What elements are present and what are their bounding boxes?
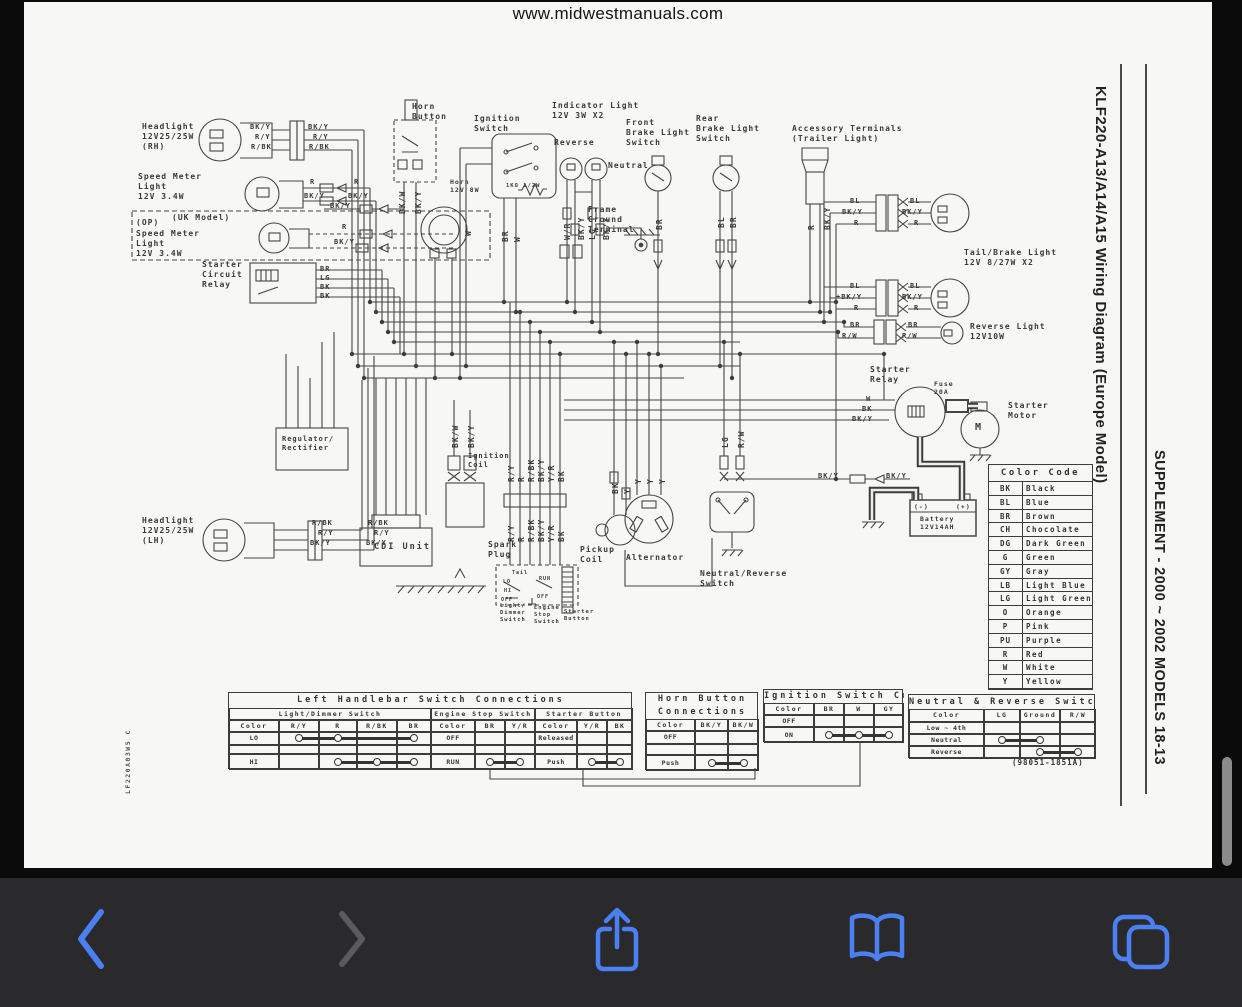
color-code-row: BLBlue [989, 496, 1092, 510]
color-code-row: BKBlack [989, 482, 1092, 496]
connection-terminal [885, 731, 893, 739]
color-name: Gray [1023, 565, 1092, 579]
table-cell [505, 732, 535, 745]
connection-table: Neutral & Reverse Switch ConnectionsColo… [908, 694, 1095, 758]
table-cell [695, 744, 728, 755]
connection-terminal [1036, 736, 1044, 744]
table-cell [607, 732, 633, 745]
color-name: White [1023, 661, 1092, 675]
color-abbr: BL [989, 496, 1023, 510]
part-number: (98051-1851A) [1012, 758, 1084, 767]
connection-bar [712, 762, 744, 765]
table-cell: Push [646, 755, 695, 771]
color-code-title: Color Code [989, 465, 1092, 482]
table-cell: R/BK [357, 720, 397, 732]
color-code-row: CHChocolate [989, 523, 1092, 537]
table-cell: R [319, 720, 357, 732]
table-cell [475, 732, 505, 745]
color-code-row: WWhite [989, 661, 1092, 675]
color-code-row: LGLight Green [989, 592, 1092, 606]
bookmarks-button[interactable] [837, 896, 917, 986]
table-cell: Low ~ 4th [909, 722, 984, 734]
table-cell: Color [764, 703, 814, 715]
table-cell: BK/Y [695, 719, 728, 731]
color-abbr: P [989, 620, 1023, 634]
connection-terminal [516, 758, 524, 766]
table-title: Left Handlebar Switch Connections [229, 693, 633, 708]
table-cell [319, 745, 357, 754]
table-cell [357, 745, 397, 754]
connection-terminal [334, 758, 342, 766]
table-cell: Engine Stop Switch [431, 708, 535, 720]
table-cell: Y/R [505, 720, 535, 732]
connection-terminal [708, 759, 716, 767]
color-name: Chocolate [1023, 523, 1092, 537]
color-name: Red [1023, 648, 1092, 662]
forward-chevron-icon [338, 910, 368, 973]
table-cell [1060, 722, 1096, 734]
table-cell: R/Y [279, 720, 319, 732]
color-abbr: LB [989, 579, 1023, 593]
table-cell: LG [984, 709, 1020, 722]
table-cell: GY [874, 703, 904, 715]
color-name: Light Blue [1023, 579, 1092, 593]
table-cell [728, 731, 759, 744]
table-cell [577, 732, 607, 745]
table-title: Neutral & Reverse Switch Connections [909, 695, 1096, 709]
color-code-row: OOrange [989, 606, 1092, 620]
table-cell: LO [229, 732, 279, 745]
color-code-row: RRed [989, 648, 1092, 662]
table-cell: Push [535, 754, 577, 770]
table-cell [431, 745, 475, 754]
table-cell: Starter Button [535, 708, 633, 720]
side-divider-line-1 [1120, 64, 1122, 806]
connection-terminal [588, 758, 596, 766]
document-page[interactable]: www.midwestmanuals.com [24, 2, 1212, 868]
connection-table: Left Handlebar Switch ConnectionsLight/D… [228, 692, 632, 769]
connection-terminal [616, 758, 624, 766]
table-cell: RUN [431, 754, 475, 770]
color-code-row: LBLight Blue [989, 579, 1092, 593]
color-name: Purple [1023, 634, 1092, 648]
table-cell: OFF [431, 732, 475, 745]
table-cell: HI [229, 754, 279, 770]
table-cell: W [844, 703, 874, 715]
connection-terminal [825, 731, 833, 739]
table-cell: Color [229, 720, 279, 732]
color-code-row: GGreen [989, 551, 1092, 565]
color-name: Orange [1023, 606, 1092, 620]
table-cell [646, 744, 695, 755]
forward-button[interactable] [313, 896, 393, 986]
table-cell [475, 745, 505, 754]
table-cell: Released [535, 732, 577, 745]
color-name: Blue [1023, 496, 1092, 510]
color-abbr: LG [989, 592, 1023, 606]
table-cell [279, 754, 319, 770]
connection-terminal [998, 736, 1006, 744]
table-cell: Y/R [577, 720, 607, 732]
table-cell [279, 745, 319, 754]
table-cell [814, 715, 844, 727]
connection-terminal [334, 734, 342, 742]
junction-dots [350, 300, 886, 481]
connection-terminal [1036, 748, 1044, 756]
table-cell: Neutral [909, 734, 984, 746]
color-abbr: GY [989, 565, 1023, 579]
side-divider-line-2 [1145, 64, 1147, 794]
color-abbr: BR [989, 510, 1023, 524]
color-code-row: DGDark Green [989, 537, 1092, 551]
connection-terminal [486, 758, 494, 766]
color-name: Dark Green [1023, 537, 1092, 551]
table-cell [535, 745, 577, 754]
color-abbr: PU [989, 634, 1023, 648]
color-name: Black [1023, 482, 1092, 496]
table-cell: Color [535, 720, 577, 732]
table-cell: BR [814, 703, 844, 715]
wiring-lines [132, 100, 999, 786]
color-name: Yellow [1023, 675, 1092, 689]
connection-bar [1002, 739, 1040, 742]
table-cell: Light/Dimmer Switch [229, 708, 431, 720]
book-icon [844, 911, 910, 972]
color-abbr: CH [989, 523, 1023, 537]
table-cell [229, 745, 279, 754]
tabs-icon [1107, 907, 1173, 976]
connection-terminal [1074, 748, 1082, 756]
tabs-button[interactable] [1100, 896, 1180, 986]
side-subtitle: SUPPLEMENT - 2000 ~ 2002 MODELS 18-13 [1151, 450, 1167, 810]
color-name: Pink [1023, 620, 1092, 634]
table-cell [874, 715, 904, 727]
table-cell: OFF [646, 731, 695, 744]
connection-terminal [410, 758, 418, 766]
table-cell: Ground [1020, 709, 1060, 722]
color-name: Light Green [1023, 592, 1092, 606]
back-chevron-icon [75, 908, 105, 975]
connection-terminal [855, 731, 863, 739]
table-cell [844, 715, 874, 727]
table-cell: OFF [764, 715, 814, 727]
table-cell [607, 745, 633, 754]
browser-toolbar [0, 878, 1242, 1007]
color-code-row: GYGray [989, 565, 1092, 579]
scrollbar-thumb[interactable] [1222, 757, 1232, 866]
table-cell [695, 731, 728, 744]
color-name: Brown [1023, 510, 1092, 524]
table-cell: Color [909, 709, 984, 722]
color-abbr: R [989, 648, 1023, 662]
color-code-table: Color Code BKBlackBLBlueBRBrownCHChocola… [988, 464, 1093, 690]
connection-terminal [410, 734, 418, 742]
color-abbr: BK [989, 482, 1023, 496]
back-button[interactable] [50, 896, 130, 986]
table-cell [397, 745, 431, 754]
color-code-row: PUPurple [989, 634, 1092, 648]
color-abbr: G [989, 551, 1023, 565]
table-cell [505, 745, 535, 754]
color-abbr: Y [989, 675, 1023, 689]
table-cell: Color [646, 719, 695, 731]
connection-table: Ignition Switch ConnectionsColorBRWGYOFF… [763, 689, 903, 742]
share-button[interactable] [577, 896, 657, 986]
table-cell [728, 744, 759, 755]
color-abbr: W [989, 661, 1023, 675]
connection-bar [299, 737, 414, 740]
connection-bar [1040, 751, 1078, 754]
doc-code: LF220A03W5 C [124, 729, 132, 794]
table-cell [1060, 734, 1096, 746]
table-title: Ignition Switch Connections [764, 690, 904, 703]
table-cell [984, 722, 1020, 734]
color-abbr: DG [989, 537, 1023, 551]
connection-terminal [373, 758, 381, 766]
table-cell: BK/W [728, 719, 759, 731]
table-cell: ON [764, 727, 814, 743]
table-cell: Reverse [909, 746, 984, 759]
table-cell: R/W [1060, 709, 1096, 722]
connection-table: Horn ButtonConnectionsColorBK/YBK/WOFFPu… [645, 692, 758, 770]
connection-terminal [295, 734, 303, 742]
table-cell [1020, 722, 1060, 734]
table-title: Connections [646, 706, 759, 719]
table-cell: BR [475, 720, 505, 732]
color-code-row: YYellow [989, 675, 1092, 689]
color-code-row: BRBrown [989, 510, 1092, 524]
color-code-row: PPink [989, 620, 1092, 634]
table-cell: BK [607, 720, 633, 732]
side-title: KLF220-A13/A14/A15 Wiring Diagram (Europ… [1092, 86, 1109, 586]
phone-screen: www.midwestmanuals.com [0, 0, 1242, 1007]
connection-terminal [740, 759, 748, 767]
table-cell: BR [397, 720, 431, 732]
table-title: Horn Button [646, 693, 759, 706]
table-cell [577, 745, 607, 754]
share-icon [590, 905, 644, 978]
color-abbr: O [989, 606, 1023, 620]
color-name: Green [1023, 551, 1092, 565]
table-cell: Color [431, 720, 475, 732]
